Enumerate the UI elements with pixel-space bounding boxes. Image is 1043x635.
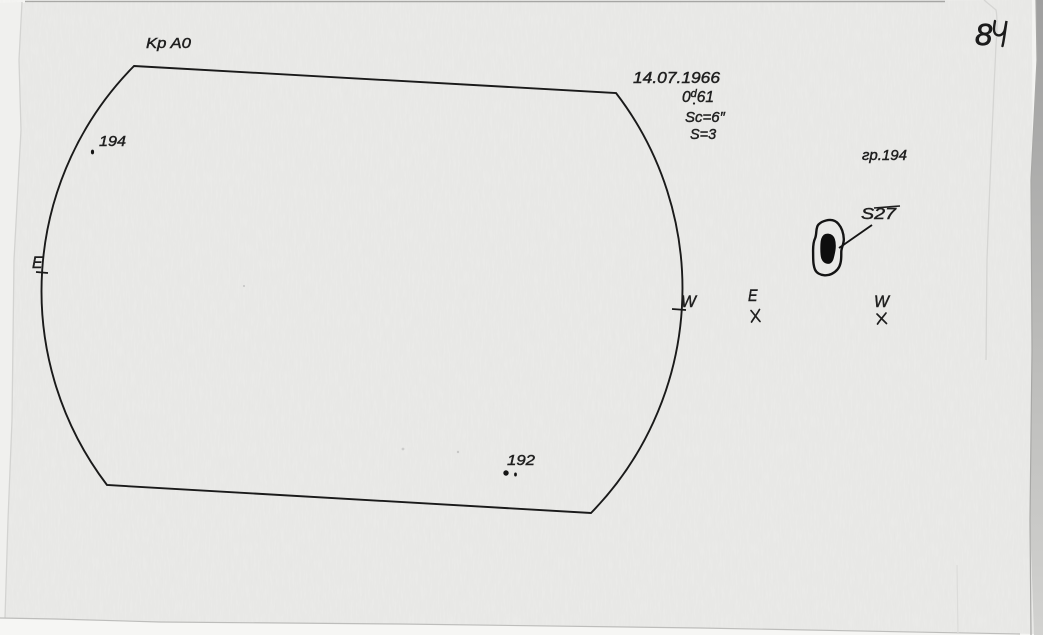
svg-text:194: 194: [99, 133, 126, 150]
svg-text:Kp A0: Kp A0: [146, 35, 192, 52]
svg-text:0d61: 0d61: [682, 88, 714, 106]
svg-text:W: W: [681, 293, 697, 311]
svg-text:192: 192: [507, 452, 536, 469]
svg-text:S27: S27: [861, 206, 897, 223]
svg-text:8: 8: [975, 17, 993, 52]
svg-text:S=3: S=3: [690, 127, 716, 143]
svg-text:W: W: [874, 293, 890, 311]
svg-text:Sc=6″: Sc=6″: [685, 109, 726, 126]
svg-text:гр.194: гр.194: [862, 147, 907, 164]
svg-text:14.07.1966: 14.07.1966: [633, 70, 720, 87]
svg-text:E: E: [32, 254, 43, 272]
svg-text:E: E: [748, 287, 758, 305]
